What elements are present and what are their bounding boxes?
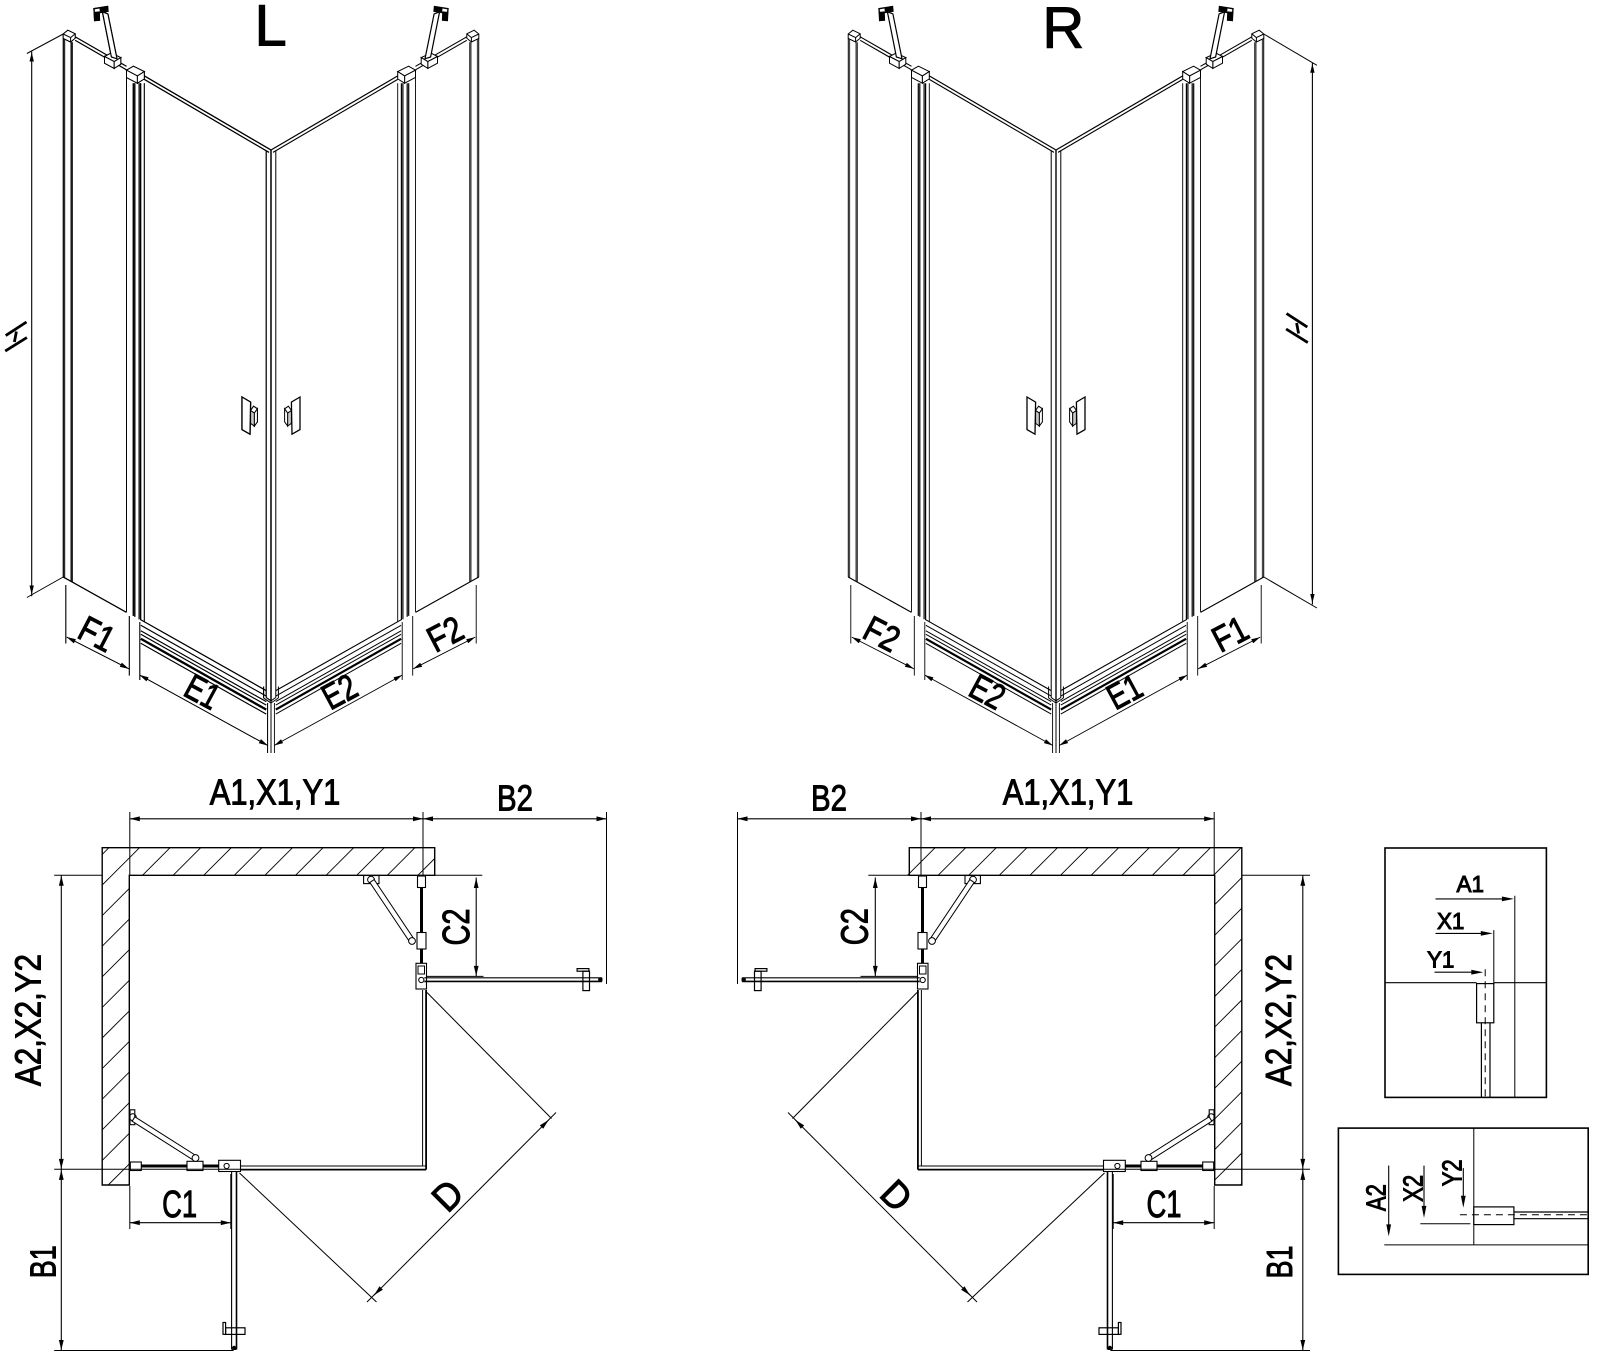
svg-text:A1: A1 [1457, 871, 1485, 897]
svg-text:A2,X2,Y2: A2,X2,Y2 [1258, 954, 1299, 1086]
svg-text:E2: E2 [315, 665, 364, 717]
svg-text:X1: X1 [1437, 908, 1465, 934]
svg-text:X2: X2 [1397, 1175, 1428, 1202]
svg-text:E2: E2 [963, 666, 1012, 718]
svg-text:C2: C2 [835, 908, 877, 945]
svg-text:B2: B2 [497, 778, 533, 819]
svg-text:C1: C1 [1147, 1184, 1182, 1226]
svg-text:F1: F1 [1205, 608, 1255, 661]
svg-text:C2: C2 [436, 909, 478, 946]
svg-text:B1: B1 [22, 1245, 63, 1278]
svg-text:Y1: Y1 [1427, 946, 1455, 972]
svg-text:F2: F2 [857, 608, 907, 661]
svg-text:B1: B1 [1259, 1246, 1300, 1279]
svg-text:F1: F1 [72, 608, 122, 661]
svg-text:R: R [1042, 0, 1084, 61]
svg-text:B2: B2 [811, 778, 847, 819]
svg-text:F2: F2 [420, 608, 470, 661]
svg-text:D: D [424, 1172, 472, 1220]
svg-text:A2,X2,Y2: A2,X2,Y2 [8, 954, 49, 1086]
svg-text:A1,X1,Y1: A1,X1,Y1 [210, 772, 341, 813]
svg-text:A2: A2 [1360, 1184, 1391, 1211]
svg-text:C1: C1 [162, 1184, 197, 1226]
svg-text:E1: E1 [1100, 665, 1149, 717]
svg-text:E1: E1 [178, 666, 227, 718]
svg-text:A1,X1,Y1: A1,X1,Y1 [1003, 772, 1134, 813]
svg-text:L: L [254, 0, 286, 59]
svg-text:D: D [872, 1172, 920, 1220]
svg-text:Y2: Y2 [1437, 1159, 1468, 1186]
